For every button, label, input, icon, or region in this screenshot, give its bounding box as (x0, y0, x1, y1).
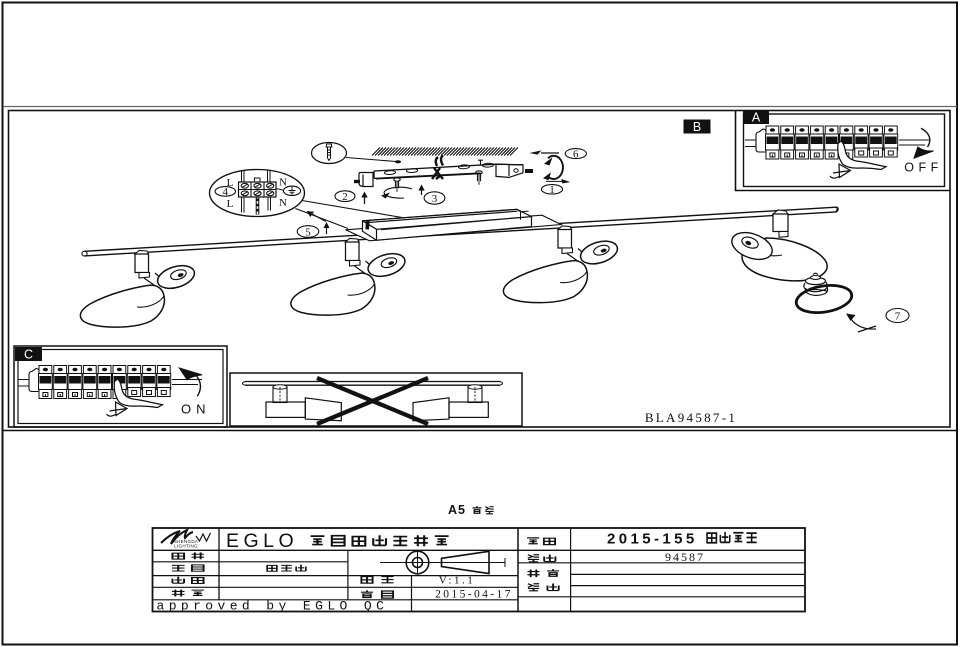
svg-text:L: L (227, 198, 234, 210)
svg-text:3: 3 (432, 193, 438, 205)
svg-text:BLA94587-1: BLA94587-1 (645, 410, 737, 425)
svg-text:EGLO: EGLO (226, 530, 298, 552)
svg-text:6: 6 (573, 148, 579, 160)
svg-text:ON: ON (181, 402, 211, 417)
svg-text:V:1.1: V:1.1 (439, 575, 475, 587)
svg-text:1: 1 (549, 184, 555, 196)
svg-text:N: N (279, 197, 287, 209)
svg-text:4: 4 (223, 186, 229, 198)
svg-text:7: 7 (895, 310, 901, 322)
svg-text:2015-04-17: 2015-04-17 (435, 589, 513, 601)
svg-text:B: B (693, 120, 701, 134)
svg-text:A: A (752, 110, 761, 124)
svg-text:5: 5 (305, 226, 311, 238)
svg-text:2: 2 (342, 191, 348, 203)
svg-text:approved by EGLO QC: approved by EGLO QC (157, 599, 389, 614)
svg-text:A5: A5 (448, 503, 466, 517)
svg-text:94587: 94587 (665, 550, 705, 564)
svg-text:2015-155: 2015-155 (607, 531, 698, 548)
svg-text:C: C (24, 347, 33, 361)
svg-text:LIGHTING: LIGHTING (174, 544, 198, 549)
svg-text:OFF: OFF (904, 160, 943, 174)
svg-text:N: N (279, 177, 287, 189)
